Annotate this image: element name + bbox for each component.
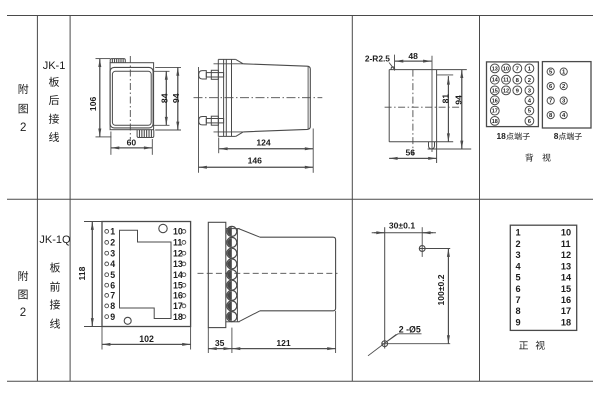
svg-text:12: 12: [173, 248, 183, 258]
svg-text:2: 2: [20, 122, 26, 134]
svg-text:5: 5: [516, 273, 521, 283]
svg-text:14: 14: [561, 273, 572, 283]
svg-text:8: 8: [516, 306, 521, 316]
svg-text:102: 102: [139, 334, 154, 344]
svg-text:56: 56: [406, 147, 416, 157]
svg-text:121: 121: [276, 338, 291, 348]
svg-text:13: 13: [492, 66, 498, 72]
svg-text:11: 11: [173, 238, 182, 248]
svg-text:1: 1: [110, 227, 115, 237]
svg-text:81: 81: [440, 94, 450, 104]
svg-text:10: 10: [173, 227, 183, 237]
svg-text:17: 17: [492, 109, 498, 115]
svg-text:48: 48: [408, 51, 418, 61]
svg-text:3: 3: [528, 89, 532, 95]
svg-text:9: 9: [110, 312, 115, 322]
svg-text:18: 18: [173, 312, 183, 322]
svg-text:10: 10: [561, 228, 571, 238]
svg-text:118: 118: [77, 266, 87, 280]
svg-text:6: 6: [516, 284, 521, 294]
svg-text:14: 14: [173, 270, 183, 280]
svg-text:30±0.1: 30±0.1: [389, 220, 415, 230]
svg-text:5: 5: [110, 270, 115, 280]
svg-text:2 -Ø5: 2 -Ø5: [399, 325, 421, 335]
svg-text:8: 8: [516, 78, 520, 84]
svg-text:18: 18: [561, 317, 571, 327]
svg-text:94: 94: [454, 95, 464, 105]
svg-text:JK-1: JK-1: [43, 60, 66, 72]
svg-text:3: 3: [516, 250, 521, 260]
svg-text:JK-1Q: JK-1Q: [39, 234, 71, 246]
svg-text:7: 7: [110, 291, 115, 301]
svg-text:7: 7: [516, 295, 521, 305]
svg-text:1: 1: [528, 67, 532, 73]
svg-text:9: 9: [516, 89, 520, 95]
svg-text:1: 1: [516, 228, 521, 238]
svg-text:4: 4: [110, 259, 115, 269]
svg-text:35: 35: [215, 338, 225, 348]
svg-text:4: 4: [516, 261, 522, 271]
svg-text:60: 60: [127, 137, 137, 147]
svg-text:15: 15: [173, 280, 183, 290]
svg-text:124: 124: [256, 138, 271, 148]
svg-text:94: 94: [171, 93, 181, 103]
svg-text:16: 16: [492, 98, 498, 104]
svg-text:2: 2: [528, 78, 532, 84]
svg-text:2: 2: [20, 307, 26, 319]
svg-text:18: 18: [492, 119, 498, 125]
svg-text:16: 16: [561, 295, 571, 305]
svg-text:18: 18: [496, 131, 506, 141]
svg-text:15: 15: [492, 88, 498, 94]
svg-text:6: 6: [110, 280, 115, 290]
svg-text:17: 17: [173, 301, 183, 311]
svg-text:4: 4: [528, 98, 532, 104]
svg-text:8: 8: [110, 301, 115, 311]
svg-text:10: 10: [503, 66, 509, 72]
svg-text:15: 15: [561, 284, 571, 294]
svg-text:11: 11: [561, 239, 571, 249]
svg-text:146: 146: [248, 156, 263, 166]
svg-text:2: 2: [516, 239, 521, 249]
svg-text:9: 9: [516, 317, 521, 327]
svg-text:8: 8: [554, 131, 559, 141]
svg-text:6: 6: [528, 119, 532, 125]
svg-text:84: 84: [159, 93, 169, 103]
svg-text:2-R2.5: 2-R2.5: [365, 54, 390, 64]
svg-text:11: 11: [503, 78, 509, 84]
svg-text:16: 16: [173, 291, 183, 301]
svg-text:2: 2: [110, 238, 115, 248]
svg-text:3: 3: [110, 248, 115, 258]
svg-text:12: 12: [561, 250, 571, 260]
svg-text:13: 13: [173, 259, 183, 269]
svg-text:7: 7: [516, 67, 520, 73]
svg-text:5: 5: [528, 109, 532, 115]
svg-text:17: 17: [561, 306, 571, 316]
svg-text:12: 12: [503, 88, 509, 94]
svg-text:13: 13: [561, 261, 571, 271]
svg-text:100±0.2: 100±0.2: [436, 274, 446, 305]
svg-text:106: 106: [88, 97, 98, 112]
svg-text:14: 14: [492, 78, 498, 84]
